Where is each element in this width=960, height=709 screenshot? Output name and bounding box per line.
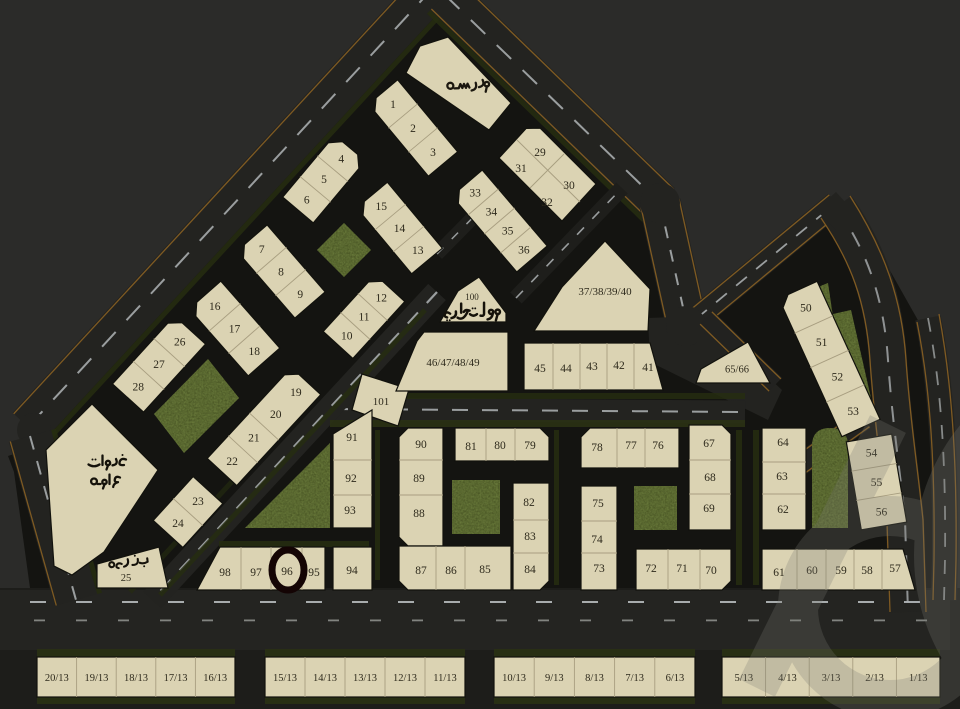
svg-text:78: 78: [591, 442, 603, 454]
svg-text:43: 43: [586, 361, 598, 373]
svg-text:25: 25: [121, 573, 132, 584]
svg-text:90: 90: [415, 439, 427, 451]
svg-text:29: 29: [534, 147, 546, 159]
svg-text:70: 70: [705, 565, 717, 577]
svg-text:44: 44: [560, 363, 572, 375]
svg-text:92: 92: [345, 473, 357, 485]
svg-text:7: 7: [259, 244, 265, 256]
svg-text:30: 30: [563, 180, 575, 192]
svg-text:53: 53: [847, 406, 859, 418]
svg-text:97: 97: [250, 567, 262, 579]
svg-text:23: 23: [192, 496, 204, 508]
svg-text:46/47/48/49: 46/47/48/49: [426, 357, 480, 369]
svg-text:34: 34: [486, 207, 498, 219]
svg-text:63: 63: [776, 471, 788, 483]
svg-text:12/13: 12/13: [393, 673, 417, 684]
svg-text:58: 58: [861, 565, 873, 577]
svg-text:15/13: 15/13: [273, 673, 297, 684]
svg-text:24: 24: [172, 518, 184, 530]
svg-text:84: 84: [524, 564, 536, 576]
svg-text:31: 31: [515, 163, 527, 175]
svg-text:87: 87: [415, 565, 427, 577]
svg-text:96: 96: [281, 566, 293, 578]
svg-text:91: 91: [346, 432, 358, 444]
svg-text:19: 19: [290, 387, 302, 399]
svg-text:3: 3: [430, 147, 436, 159]
svg-text:21: 21: [248, 432, 260, 444]
svg-text:4: 4: [338, 153, 344, 165]
svg-text:45: 45: [534, 363, 546, 375]
svg-text:101: 101: [373, 396, 390, 408]
svg-text:18/13: 18/13: [124, 673, 148, 684]
svg-text:79: 79: [524, 440, 536, 452]
svg-text:12: 12: [376, 293, 388, 305]
svg-text:69: 69: [703, 503, 715, 515]
svg-text:51: 51: [816, 337, 828, 349]
svg-text:8: 8: [278, 267, 284, 279]
svg-text:5: 5: [321, 174, 327, 186]
svg-text:83: 83: [524, 531, 536, 543]
svg-text:94: 94: [346, 565, 358, 577]
svg-text:100: 100: [465, 292, 479, 302]
svg-text:32: 32: [541, 197, 553, 209]
svg-text:6/13: 6/13: [666, 673, 685, 684]
svg-text:76: 76: [652, 440, 664, 452]
svg-text:18: 18: [248, 346, 260, 358]
svg-text:36: 36: [518, 245, 530, 257]
svg-text:77: 77: [625, 440, 637, 452]
svg-text:35: 35: [502, 226, 514, 238]
svg-text:57: 57: [889, 563, 901, 575]
svg-text:17/13: 17/13: [164, 673, 188, 684]
svg-text:27: 27: [153, 359, 165, 371]
svg-text:67: 67: [703, 438, 715, 450]
svg-text:8/13: 8/13: [585, 673, 604, 684]
svg-text:81: 81: [465, 441, 477, 453]
svg-text:65/66: 65/66: [725, 365, 749, 376]
svg-text:7/13: 7/13: [625, 673, 644, 684]
svg-text:26: 26: [174, 336, 186, 348]
svg-text:16: 16: [209, 301, 221, 313]
svg-text:85: 85: [479, 564, 491, 576]
svg-text:82: 82: [523, 497, 535, 509]
svg-text:62: 62: [777, 504, 789, 516]
svg-text:13: 13: [412, 245, 424, 257]
svg-text:95: 95: [308, 567, 320, 579]
svg-text:98: 98: [219, 567, 231, 579]
svg-text:33: 33: [469, 188, 481, 200]
svg-text:74: 74: [591, 534, 603, 546]
svg-text:37/38/39/40: 37/38/39/40: [578, 286, 632, 298]
svg-text:6: 6: [304, 195, 310, 207]
svg-text:73: 73: [593, 563, 605, 575]
svg-text:11/13: 11/13: [433, 673, 457, 684]
svg-text:9: 9: [297, 289, 303, 301]
svg-text:16/13: 16/13: [203, 673, 227, 684]
svg-text:19/13: 19/13: [84, 673, 108, 684]
svg-text:64: 64: [777, 437, 789, 449]
svg-text:50: 50: [800, 302, 812, 314]
svg-text:20: 20: [270, 409, 282, 421]
svg-text:42: 42: [613, 360, 625, 372]
svg-text:17: 17: [229, 324, 241, 336]
svg-text:86: 86: [445, 565, 457, 577]
svg-text:20/13: 20/13: [45, 673, 69, 684]
svg-text:9/13: 9/13: [545, 673, 564, 684]
svg-text:52: 52: [832, 371, 844, 383]
svg-text:14/13: 14/13: [313, 673, 337, 684]
svg-text:13/13: 13/13: [353, 673, 377, 684]
svg-text:80: 80: [494, 440, 506, 452]
svg-text:72: 72: [645, 563, 657, 575]
svg-text:2: 2: [410, 123, 416, 135]
svg-text:89: 89: [413, 473, 425, 485]
svg-text:15: 15: [375, 201, 387, 213]
svg-text:75: 75: [592, 498, 604, 510]
svg-text:10: 10: [341, 331, 353, 343]
svg-text:28: 28: [133, 382, 145, 394]
svg-text:71: 71: [676, 563, 688, 575]
svg-text:22: 22: [226, 456, 238, 468]
svg-text:14: 14: [394, 223, 406, 235]
svg-text:68: 68: [704, 472, 716, 484]
svg-text:11: 11: [358, 312, 369, 324]
svg-text:93: 93: [344, 505, 356, 517]
svg-text:41: 41: [642, 362, 654, 374]
svg-text:88: 88: [413, 508, 425, 520]
svg-text:10/13: 10/13: [502, 673, 526, 684]
svg-text:1: 1: [390, 99, 396, 111]
